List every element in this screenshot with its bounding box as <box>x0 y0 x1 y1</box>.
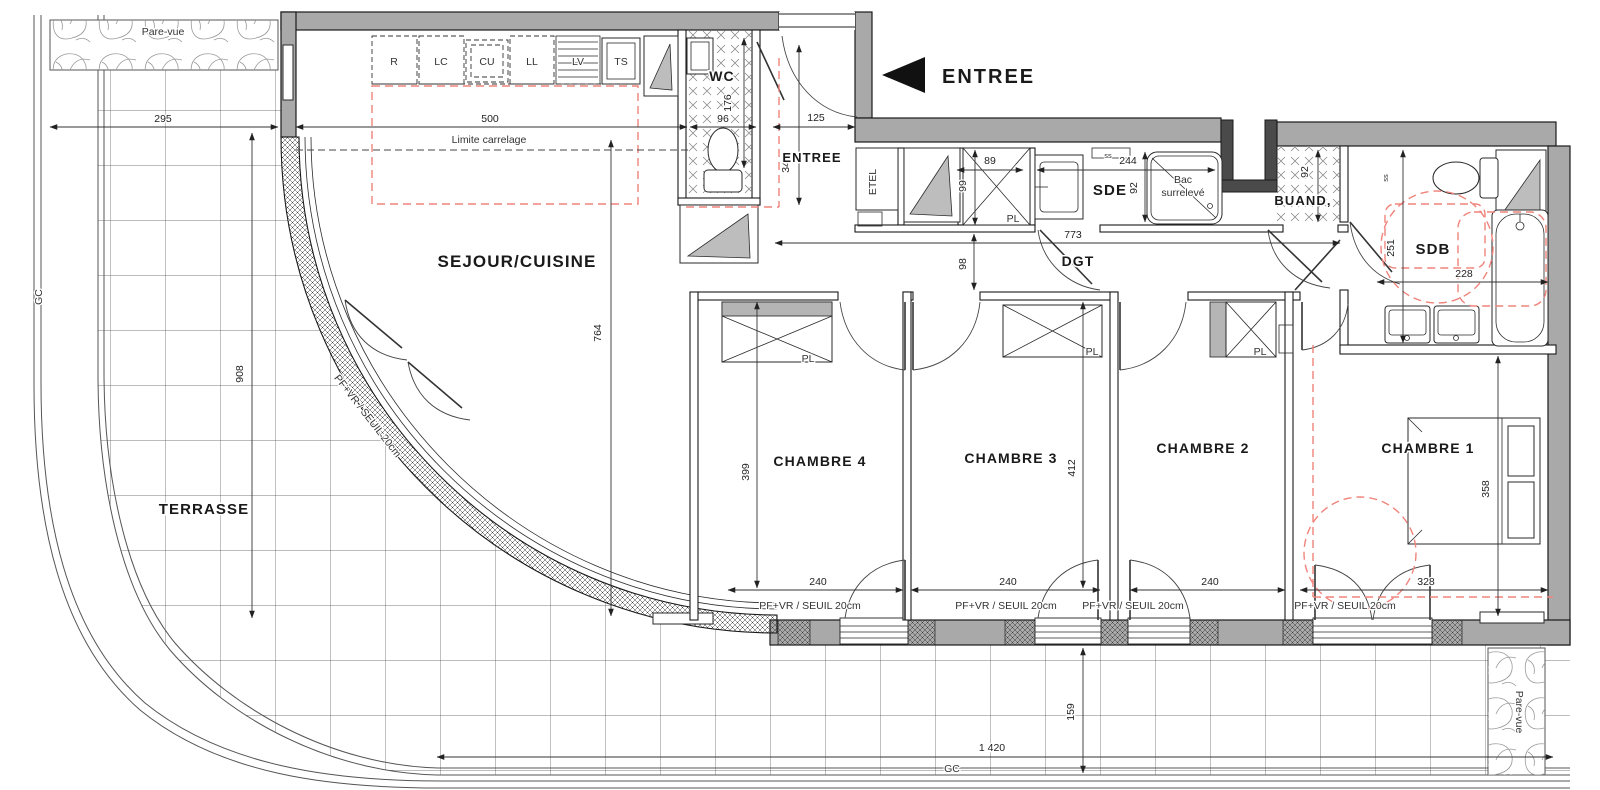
dim-ch3-d: 412 <box>1066 459 1078 477</box>
pl-ch3-label: PL <box>1086 346 1099 358</box>
sill-ch2-label: PF+VR / SEUIL 20cm <box>1082 600 1184 612</box>
sill-ch4-label: PF+VR / SEUIL 20cm <box>759 600 861 612</box>
gc-bottom-label: GC <box>944 763 960 775</box>
closet-entry <box>963 148 1030 225</box>
sde-label: SDE <box>1093 182 1127 199</box>
corridor-top-wall-b <box>1100 225 1283 232</box>
corridor-bottom-wall-d <box>1188 292 1300 300</box>
sdb-toilet-bowl <box>1433 162 1479 194</box>
window-ch3 <box>1035 618 1101 644</box>
entree-room-label: ENTREE <box>782 150 841 165</box>
dim-pl-w: 89 <box>984 155 996 167</box>
pare-vue-bottom-label: Pare-vue <box>1513 691 1525 734</box>
closet-ch4 <box>722 302 832 362</box>
left-wall-window <box>283 45 293 100</box>
ch3-label: CHAMBRE 3 <box>964 450 1057 466</box>
pillow-1 <box>1508 426 1534 476</box>
part-ch3-ch2 <box>1110 292 1118 620</box>
corridor-top-wall-c <box>1338 225 1348 232</box>
pare-vue-top-label: Pare-vue <box>142 26 185 38</box>
sdb-wall-left-a <box>1340 146 1348 222</box>
buand-hatch <box>1277 146 1340 225</box>
dim-sdb-d: 251 <box>1385 239 1397 257</box>
wall-top-right <box>1277 122 1556 146</box>
ss-sdb-label: ss <box>1381 174 1390 182</box>
window-ch4 <box>840 618 908 644</box>
dim-dgt-w: 98 <box>957 258 969 270</box>
wc-label: WC <box>709 68 735 84</box>
sejour-label: SEJOUR/CUISINE <box>438 252 597 271</box>
wall-top-mid <box>855 118 1221 142</box>
kitchen-label-cu: CU <box>479 56 494 68</box>
kitchen-label-r: R <box>390 56 398 68</box>
limite-carrelage-label: Limite carrelage <box>452 134 527 146</box>
ch4-label: CHAMBRE 4 <box>773 453 866 469</box>
corridor-bottom-wall-a <box>698 292 838 300</box>
wc-wall-right <box>752 30 760 205</box>
dim-buand-d: 92 <box>1299 166 1311 178</box>
entry-door-arc <box>782 36 857 117</box>
bac-label-1: Bac <box>1174 174 1192 186</box>
dim-sejour-w: 500 <box>481 113 499 125</box>
wc-toilet-tank <box>704 170 742 192</box>
sill-ch3-label: PF+VR / SEUIL 20cm <box>955 600 1057 612</box>
dim-ch1-d: 358 <box>1480 480 1492 498</box>
kitchen-label-lv: LV <box>572 56 584 68</box>
dim-sejour-d: 764 <box>592 324 604 342</box>
kitchen-label-ll: LL <box>526 56 538 68</box>
sdb-basin-1 <box>1385 306 1430 343</box>
part-sejour-ch4 <box>690 292 698 620</box>
entry-arrow-icon <box>882 57 925 93</box>
dim-sde-d: 92 <box>1128 182 1140 194</box>
dgt-label: DGT <box>1062 253 1095 269</box>
corridor-bottom-wall-c <box>980 292 1118 300</box>
dim-dgt-l: 773 <box>1064 229 1082 241</box>
entry-arrow-label: ENTREE <box>942 66 1035 88</box>
floor-plan-svg: Pare-vue Pare-vue TERRASSE GC GC <box>0 0 1600 790</box>
kitchen-label-ts: TS <box>614 56 627 68</box>
sdb-basin-2 <box>1434 306 1479 343</box>
dim-ch2-w: 240 <box>1201 576 1219 588</box>
ch1-radiator <box>1480 612 1544 623</box>
floor-plan: Pare-vue Pare-vue TERRASSE GC GC <box>0 0 1600 790</box>
dim-pl-d: 99 <box>957 180 969 192</box>
dim-wc-d: 176 <box>722 94 734 112</box>
wall-entry-corner <box>855 12 872 118</box>
dim-wc-w: 96 <box>717 113 729 125</box>
pl-ch2-label: PL <box>1254 346 1267 358</box>
window-ch2 <box>1128 618 1190 644</box>
ch2-label: CHAMBRE 2 <box>1156 440 1249 456</box>
bed-ch1 <box>1408 418 1540 544</box>
kitchen-label-lc: LC <box>434 56 448 68</box>
window-ch1 <box>1313 618 1432 644</box>
pl-entry-label: PL <box>1007 213 1020 225</box>
niche-bottom <box>1221 180 1277 192</box>
sejour-window-sill <box>653 613 713 624</box>
dim-sde-w: 244 <box>1119 155 1137 167</box>
pl-ch4-label: PL <box>802 353 815 365</box>
wc-wall-left <box>678 30 686 205</box>
etel-label: ETEL <box>867 169 879 195</box>
ch1-label: CHAMBRE 1 <box>1381 440 1474 456</box>
gc-left-label: GC <box>33 289 45 305</box>
wc-toilet-bowl <box>708 128 738 172</box>
dim-ch3-w: 240 <box>999 576 1017 588</box>
wall-right <box>1548 146 1570 645</box>
dim-ch4-d: 399 <box>740 463 752 481</box>
entry-arrow: ENTREE <box>882 57 1035 93</box>
dim-ch4-w: 240 <box>809 576 827 588</box>
wall-top-left <box>281 12 779 30</box>
buand-label: BUAND, <box>1274 193 1331 208</box>
dim-sdb-w: 228 <box>1455 268 1473 280</box>
part-etel-shaft <box>898 148 904 225</box>
sdb-label: SDB <box>1416 241 1451 258</box>
part-pl-sde <box>1030 148 1035 225</box>
sill-ch1-label: PF+VR / SEUIL 20cm <box>1294 600 1396 612</box>
pillow-2 <box>1508 482 1534 538</box>
terrasse-label: TERRASSE <box>159 501 249 518</box>
wc-wall-bottom <box>678 198 760 205</box>
ss-sde-label: ss <box>1104 151 1112 160</box>
dim-terr-s-w: 1 420 <box>979 742 1005 754</box>
bac-label-2: surrelevé <box>1161 187 1204 199</box>
part-ch2-ch1 <box>1285 292 1293 620</box>
dim-entree-w: 125 <box>807 112 825 124</box>
dim-terr-s-d: 159 <box>1065 703 1077 721</box>
dim-ch1-w: 328 <box>1417 576 1435 588</box>
sdb-toilet-tank <box>1480 158 1498 198</box>
dim-terrasse-w: 295 <box>154 113 172 125</box>
dim-terrasse-d: 908 <box>234 365 246 383</box>
